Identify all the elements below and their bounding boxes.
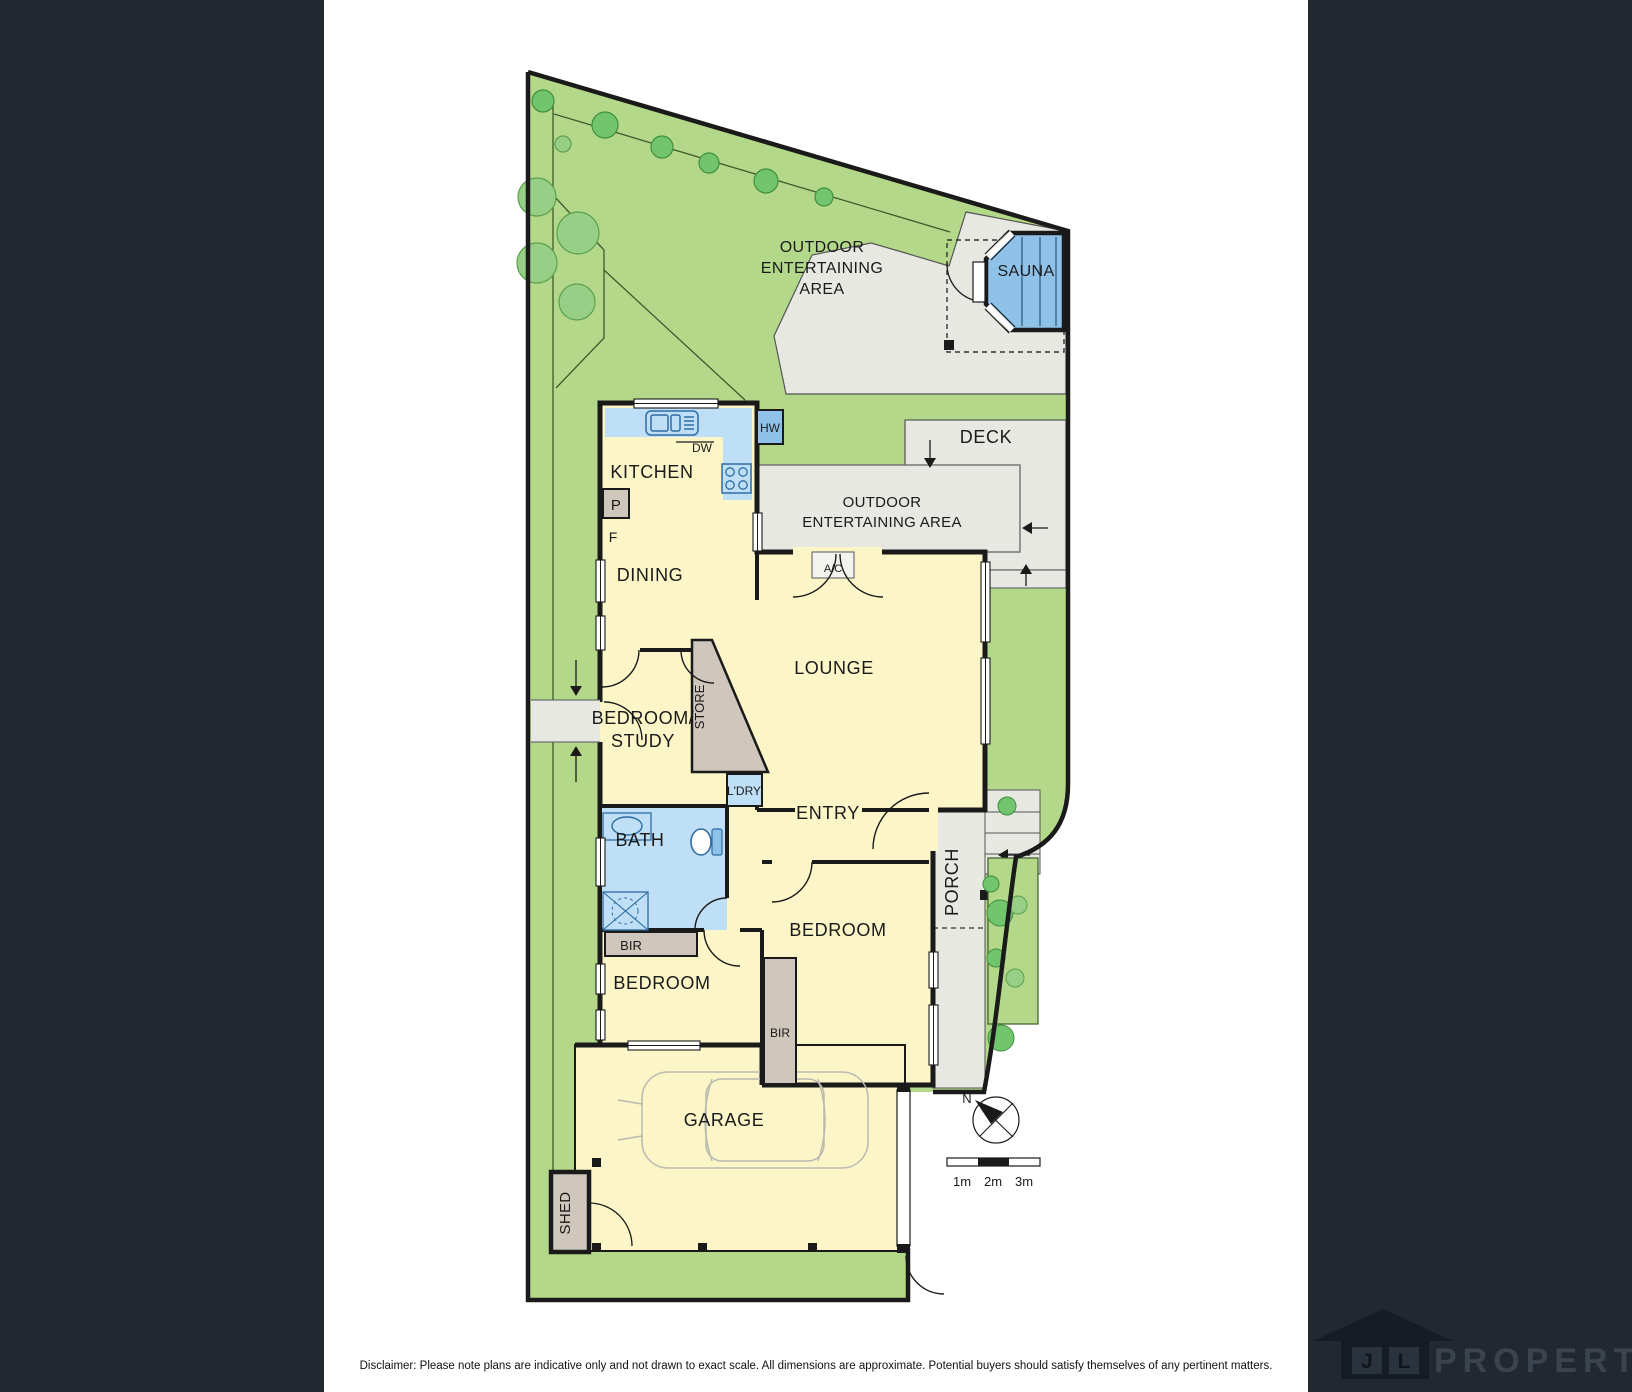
- window-icon: [753, 513, 762, 551]
- bath-label: BATH: [615, 830, 664, 850]
- compass-north-label: N: [962, 1091, 971, 1106]
- post: [592, 1243, 601, 1252]
- oea-mid-label-1: OUTDOOR: [843, 494, 922, 511]
- floorplan-canvas: KITCHEN DINING LOUNGE ENTRY BATH BEDROOM…: [0, 0, 1632, 1392]
- sauna-label: SAUNA: [997, 263, 1054, 280]
- floorplan-page: KITCHEN DINING LOUNGE ENTRY BATH BEDROOM…: [0, 0, 1632, 1392]
- window-icon: [634, 399, 718, 408]
- oea-top-label-3: AREA: [799, 281, 844, 298]
- scale-bar: 1m 2m 3m: [947, 1158, 1040, 1189]
- window-icon: [981, 658, 990, 744]
- deck-label: DECK: [960, 427, 1012, 447]
- window-icon: [929, 1005, 938, 1065]
- brand-name: PROPERTY: [1434, 1342, 1632, 1380]
- hot-water-label: HW: [760, 421, 781, 435]
- window-icon: [981, 562, 990, 642]
- window-icon: [596, 964, 605, 994]
- kitchen-sink-icon: [646, 411, 698, 435]
- post: [808, 1243, 817, 1252]
- logo-initial-1: J: [1361, 1350, 1373, 1373]
- toilet-icon: [691, 829, 711, 855]
- bedroom-right-label: BEDROOM: [789, 920, 886, 940]
- stove-icon: [722, 464, 751, 493]
- window-icon: [596, 1010, 605, 1040]
- wall-stub: [897, 1083, 910, 1092]
- bedroom-study-label-1: BEDROOM/: [592, 708, 695, 728]
- entry-label: ENTRY: [796, 803, 860, 823]
- window-icon: [596, 560, 605, 602]
- bir-bath-label: BIR: [620, 938, 642, 953]
- sauna-door-leaf: [973, 262, 985, 302]
- scale-3m-label: 3m: [1015, 1174, 1033, 1189]
- oea-top-label-1: OUTDOOR: [780, 239, 865, 256]
- kitchen-label: KITCHEN: [610, 462, 693, 482]
- bedroom-left-label: BEDROOM: [613, 973, 710, 993]
- scale-1m-label: 1m: [953, 1174, 971, 1189]
- disclaimer-text: Disclaimer: Please note plans are indica…: [360, 1360, 1273, 1372]
- window-icon: [929, 952, 938, 988]
- laundry-label: L'DRY: [727, 784, 761, 798]
- left-side-panel: [0, 0, 324, 1392]
- built-in-robe-2: [764, 958, 796, 1084]
- toilet-cistern: [712, 829, 722, 855]
- scale-2m-label: 2m: [984, 1174, 1002, 1189]
- right-side-panel: [1308, 0, 1632, 1392]
- built-in-robe-1: [605, 932, 697, 956]
- window-icon: [596, 838, 605, 886]
- dining-label: DINING: [617, 565, 684, 585]
- ac-label: A/C: [824, 563, 842, 575]
- porch-area: [933, 790, 985, 1088]
- pantry-label: P: [611, 497, 621, 514]
- post: [698, 1243, 707, 1252]
- bedroom-study-label-2: STUDY: [611, 731, 675, 751]
- post: [944, 340, 954, 350]
- porch-label: PORCH: [942, 848, 962, 916]
- fridge-label: F: [609, 529, 618, 545]
- store-label: STORE: [692, 684, 707, 729]
- post: [592, 1158, 601, 1167]
- window-icon: [628, 1041, 700, 1050]
- oea-top-label-2: ENTERTAINING: [761, 260, 883, 277]
- front-door-opening: [929, 793, 938, 851]
- lounge-label: LOUNGE: [794, 658, 874, 678]
- garage-label: GARAGE: [684, 1110, 765, 1130]
- garage-door: [897, 1090, 910, 1246]
- bir-beds-label: BIR: [770, 1026, 790, 1040]
- window-icon: [596, 616, 605, 650]
- oea-mid-label-2: ENTERTAINING AREA: [802, 514, 962, 531]
- shower-icon: [603, 892, 648, 930]
- logo-initial-2: L: [1398, 1350, 1411, 1373]
- dishwasher-label: DW: [692, 441, 713, 455]
- shed-label: SHED: [557, 1192, 574, 1235]
